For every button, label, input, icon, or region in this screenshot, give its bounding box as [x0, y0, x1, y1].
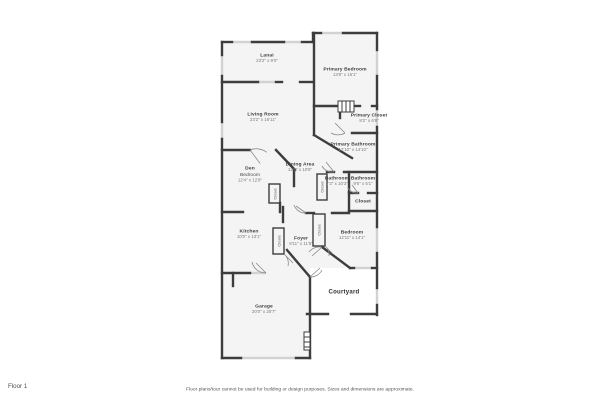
floor-selector-label[interactable]: Floor 1 [8, 383, 27, 390]
floorplan-page: Lanai 23'2" x 9'0" Primary Bedroom 13'8"… [0, 0, 600, 400]
disclaimer-text: Floor plans/tour cannot be used for buil… [135, 386, 465, 392]
floorplan-drawing [0, 0, 600, 400]
